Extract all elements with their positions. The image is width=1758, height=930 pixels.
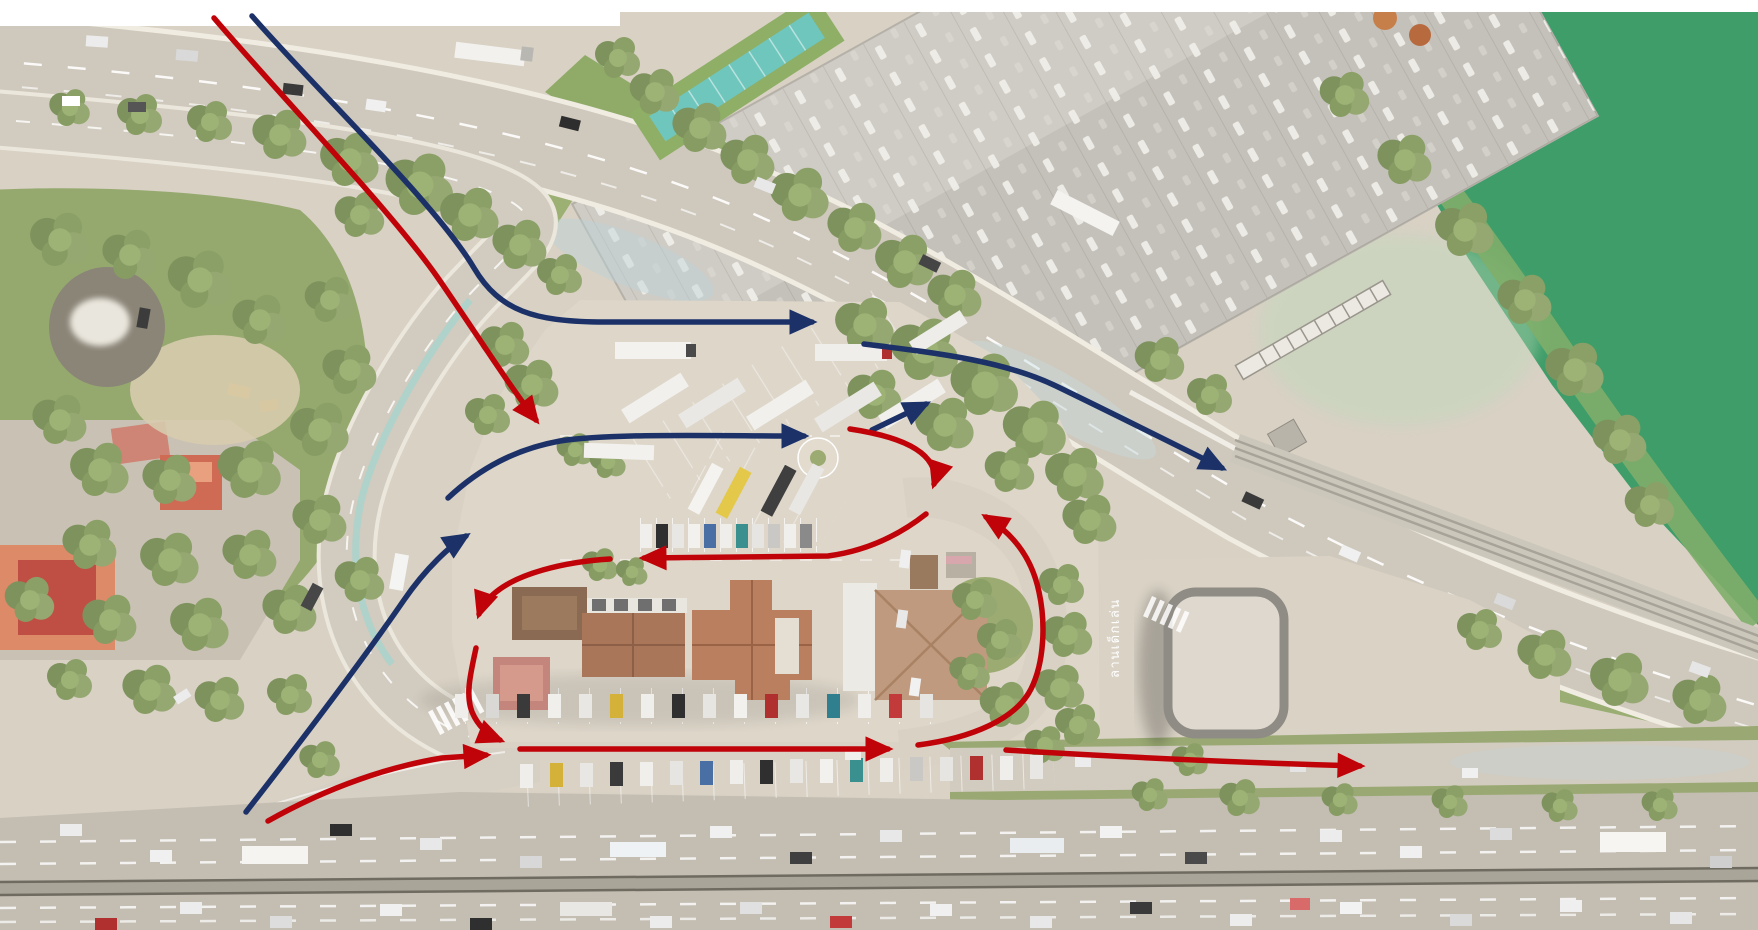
vehicle — [180, 902, 202, 914]
parked-truck — [686, 344, 696, 357]
parked-car — [920, 694, 933, 718]
top-left-margin — [0, 0, 620, 26]
parked-car — [688, 524, 700, 548]
vehicle — [1290, 898, 1310, 910]
parked-car — [579, 694, 592, 718]
parked-car — [796, 694, 809, 718]
vehicle — [380, 904, 402, 916]
vehicle — [1462, 768, 1478, 778]
bus-vehicle — [560, 902, 612, 916]
vehicle — [520, 856, 542, 868]
vehicle — [1075, 757, 1091, 767]
vehicle — [1230, 914, 1252, 926]
terrace-steps — [775, 618, 799, 674]
vehicle — [128, 102, 146, 112]
parked-car — [784, 524, 796, 548]
playground-label: ลานเด็กเล่น — [1105, 598, 1122, 678]
parked-car — [656, 524, 668, 548]
parked-car — [734, 694, 747, 718]
parked-car — [670, 761, 683, 785]
parked-car — [550, 763, 563, 787]
parked-truck — [584, 443, 654, 460]
vehicle — [60, 824, 82, 836]
aerial-render: ลานเด็กเล่น — [0, 0, 1758, 930]
vehicle — [1450, 914, 1472, 926]
vehicle — [1560, 900, 1582, 912]
vehicle — [880, 830, 902, 842]
parked-car — [700, 761, 713, 785]
kiosk-building — [946, 552, 976, 578]
parked-car — [455, 694, 468, 718]
vehicle — [1320, 830, 1342, 842]
vehicle — [95, 918, 117, 930]
parked-car — [640, 524, 652, 548]
parked-car — [672, 524, 684, 548]
parked-car — [610, 694, 623, 718]
parked-car — [790, 759, 803, 783]
parked-car — [486, 694, 499, 718]
multipurpose-hall-building — [1138, 590, 1284, 746]
vehicle — [1600, 832, 1666, 852]
vehicle — [1710, 856, 1732, 868]
parked-car — [880, 758, 893, 782]
vehicle — [242, 846, 308, 864]
parked-car — [703, 694, 716, 718]
vehicle — [1340, 902, 1362, 914]
parked-car — [517, 694, 530, 718]
vehicle — [150, 850, 172, 862]
bus-vehicle — [1010, 838, 1064, 853]
parked-car — [752, 524, 764, 548]
parked-car — [672, 694, 685, 718]
parked-car — [704, 524, 716, 548]
parked-car — [765, 694, 778, 718]
parked-car — [640, 762, 653, 786]
vehicle — [62, 96, 80, 106]
parked-truck — [615, 342, 691, 359]
vehicle — [650, 916, 672, 928]
parked-car — [736, 524, 748, 548]
parked-car — [641, 694, 654, 718]
vehicle — [830, 916, 852, 928]
vehicle — [1030, 916, 1052, 928]
parked-car — [827, 694, 840, 718]
vehicle — [1400, 846, 1422, 858]
vehicle — [520, 46, 534, 61]
vehicle — [270, 916, 292, 928]
parked-car — [580, 763, 593, 787]
pond-reflection — [70, 298, 130, 346]
vehicle — [1670, 912, 1692, 924]
vehicle — [790, 852, 812, 864]
parked-car — [610, 762, 623, 786]
parked-car — [730, 760, 743, 784]
white-annex — [843, 583, 877, 691]
parked-car — [800, 524, 812, 548]
kiosk-building — [910, 555, 938, 589]
rest-area-aerial-map: ลานเด็กเล่น — [0, 0, 1758, 930]
vehicle — [330, 824, 352, 836]
parked-car — [548, 694, 561, 718]
vehicle — [740, 902, 762, 914]
vehicle — [1130, 902, 1152, 914]
vehicle — [470, 918, 492, 930]
parked-car — [850, 758, 863, 782]
parked-car — [768, 524, 780, 548]
vehicle — [1100, 826, 1122, 838]
vehicle — [176, 49, 199, 62]
parked-car — [910, 757, 923, 781]
bus-vehicle — [610, 842, 666, 857]
vehicle — [1490, 828, 1512, 840]
parked-car — [889, 694, 902, 718]
vehicle — [930, 904, 952, 916]
autumn-tree — [1409, 24, 1431, 46]
parked-car — [820, 759, 833, 783]
parked-car — [720, 524, 732, 548]
parked-car — [760, 760, 773, 784]
parked-car — [940, 757, 953, 781]
parked-car — [1030, 755, 1043, 779]
parked-car — [970, 756, 983, 780]
vehicle — [710, 826, 732, 838]
parked-car — [520, 764, 533, 788]
vehicle — [1185, 852, 1207, 864]
parked-car — [1000, 756, 1013, 780]
vehicle — [420, 838, 442, 850]
parked-car — [858, 694, 871, 718]
vehicle — [86, 35, 109, 48]
